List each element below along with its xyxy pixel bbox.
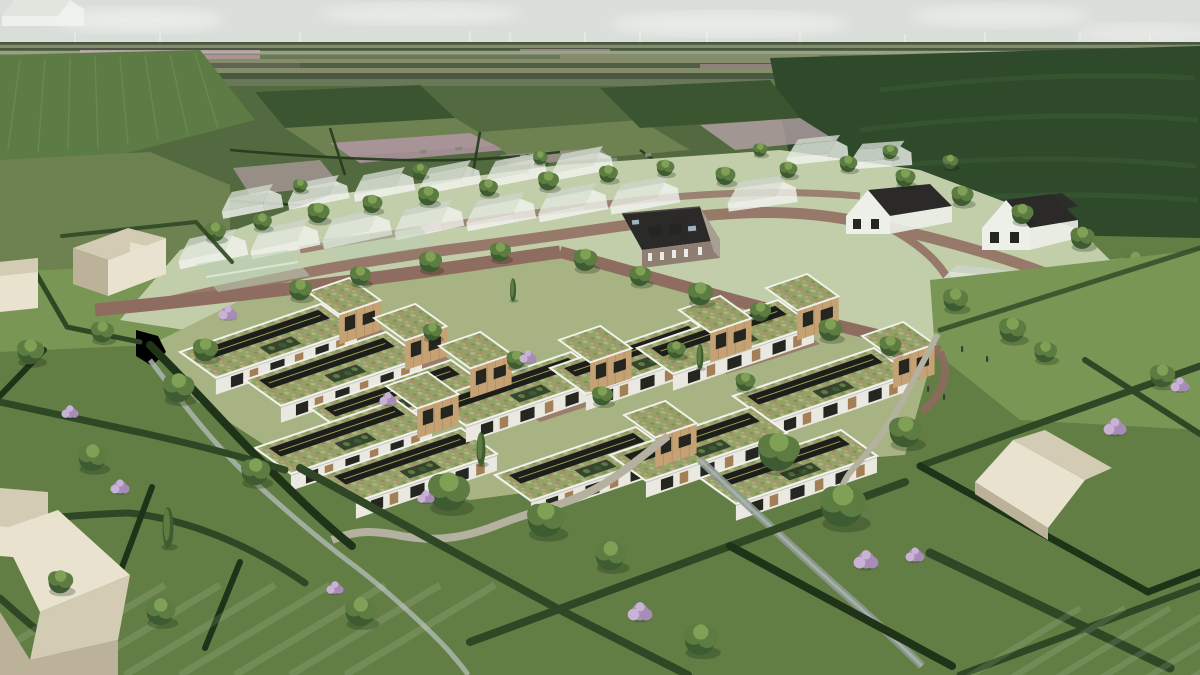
- farmhouse-skylight: [688, 226, 696, 232]
- pedestrian: [927, 386, 929, 392]
- farmhouse-window: [684, 249, 688, 257]
- pedestrian: [943, 394, 945, 400]
- farmhouse-dormer: [668, 223, 683, 235]
- house-window: [871, 219, 879, 229]
- sky: [0, 0, 1200, 48]
- cloud: [910, 5, 1090, 27]
- pedestrian: [961, 346, 963, 352]
- pedestrian: [986, 356, 988, 362]
- farmhouse-window: [648, 253, 652, 261]
- house-window: [853, 219, 861, 229]
- farmhouse-skylight: [632, 220, 639, 225]
- farmhouse-window: [672, 250, 676, 258]
- distant-strip: [0, 42, 1200, 45]
- farmhouse-dormer: [648, 225, 663, 237]
- architectural-rendering: [0, 0, 1200, 675]
- ghost-house: [2, 0, 84, 26]
- cloud: [320, 4, 520, 24]
- cream-house-left-1: [0, 258, 38, 312]
- rendering-canvas: [0, 0, 1200, 675]
- farmhouse-window: [698, 247, 702, 255]
- distant-strip: [260, 55, 560, 59]
- house-window: [990, 232, 999, 243]
- cloud: [610, 12, 850, 36]
- distant-strip: [0, 45, 1200, 48]
- distant-pink-field: [520, 49, 610, 52]
- farmhouse-window: [660, 252, 664, 260]
- house-window: [1010, 232, 1019, 243]
